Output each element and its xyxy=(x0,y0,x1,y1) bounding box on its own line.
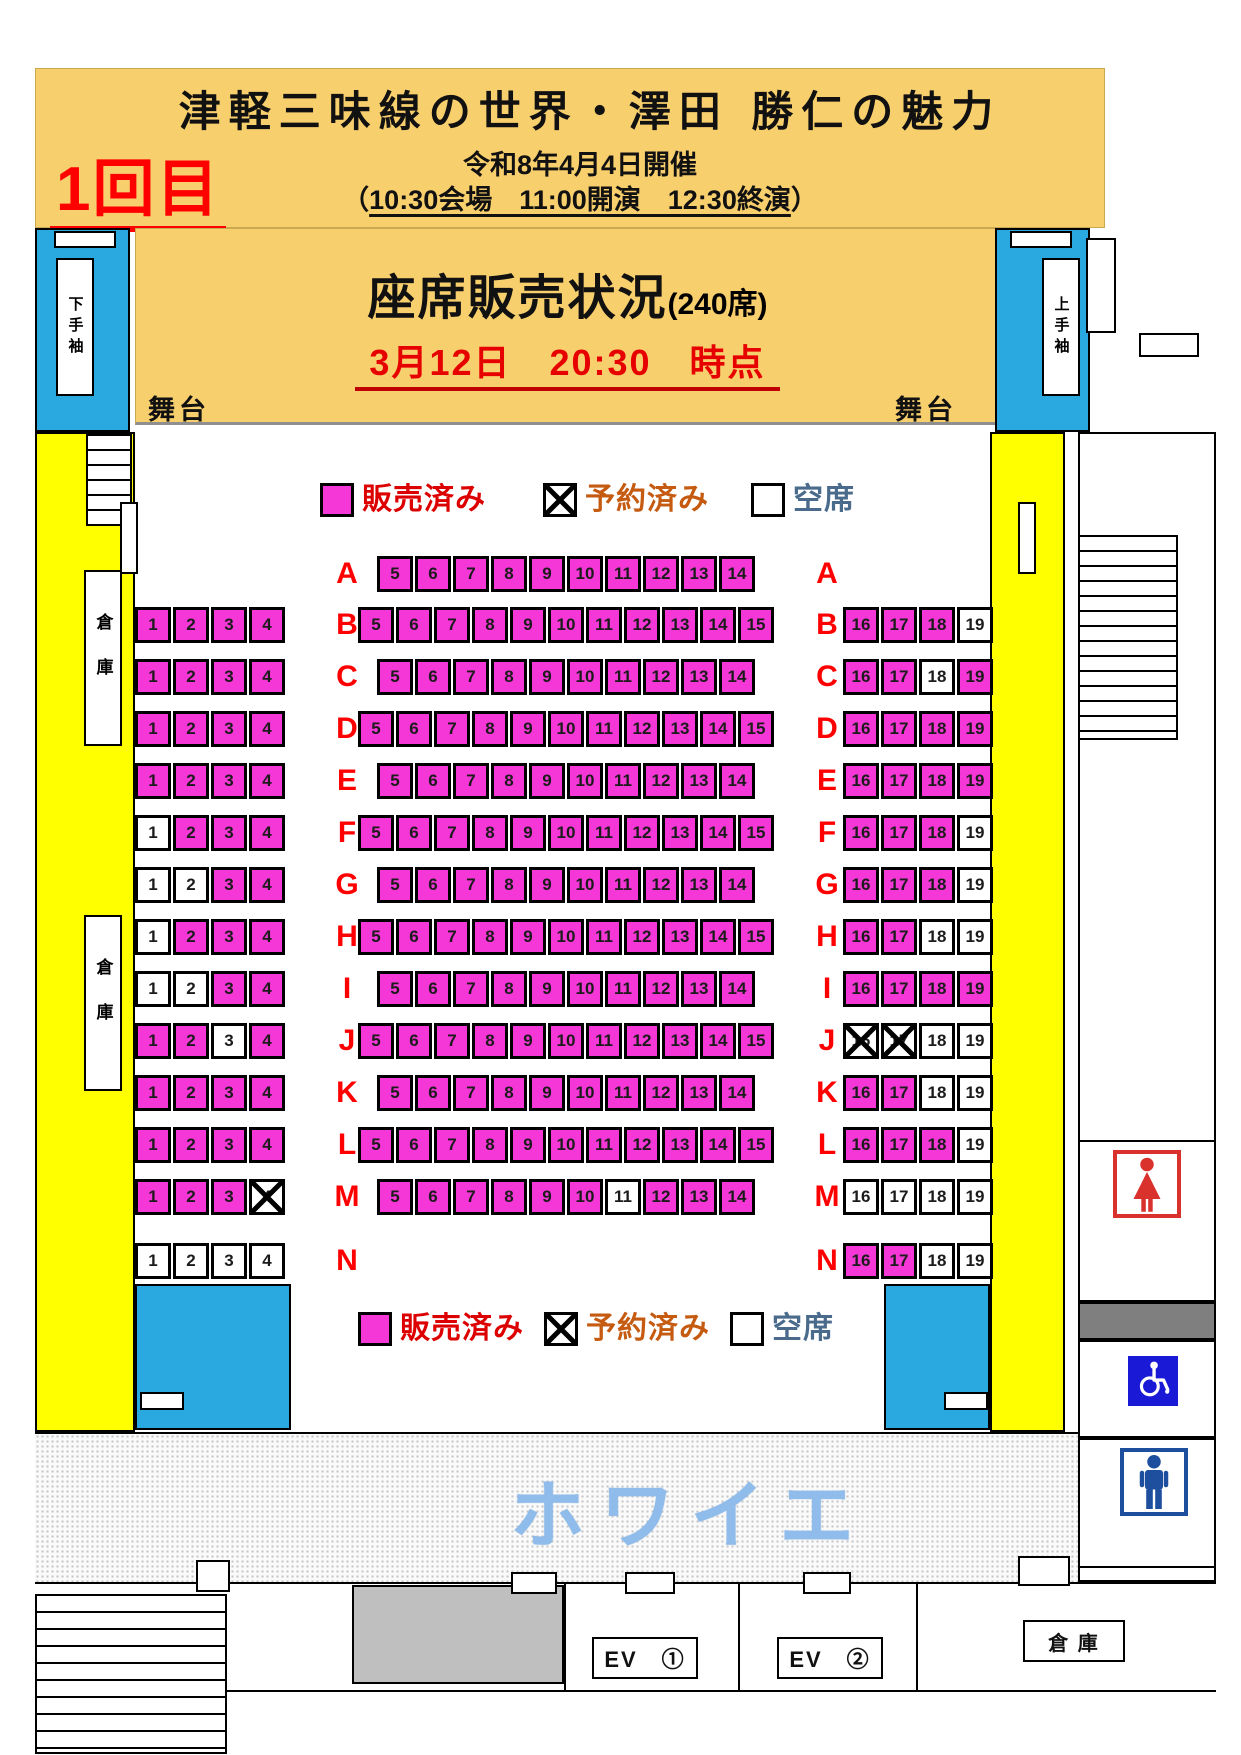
seat-I6: 6 xyxy=(415,971,451,1007)
seat-K5: 5 xyxy=(377,1075,413,1111)
seat-F13: 13 xyxy=(662,815,698,851)
seat-A8: 8 xyxy=(491,556,527,592)
elevator-1-label: EV ① xyxy=(604,1642,685,1674)
elevator-2-label: EV ② xyxy=(789,1642,870,1674)
seat-A11: 11 xyxy=(605,556,641,592)
seat-H1: 1 xyxy=(135,919,171,955)
legend-top-reserved-swatch xyxy=(543,483,577,517)
seat-L5: 5 xyxy=(358,1127,394,1163)
seat-E13: 13 xyxy=(681,763,717,799)
bottom-divider-3 xyxy=(916,1582,918,1692)
seat-H9: 9 xyxy=(510,919,546,955)
seat-J7: 7 xyxy=(434,1023,470,1059)
seat-C2: 2 xyxy=(173,659,209,695)
legend-top-sold-swatch xyxy=(320,483,354,517)
seat-L18: 18 xyxy=(919,1127,955,1163)
seat-A5: 5 xyxy=(377,556,413,592)
seat-D19: 19 xyxy=(957,711,993,747)
seat-C19: 19 xyxy=(957,659,993,695)
stage-entrance-right-door xyxy=(944,1392,988,1410)
seat-B5: 5 xyxy=(358,607,394,643)
seat-N16: 16 xyxy=(843,1243,879,1279)
strip-door-3 xyxy=(803,1572,851,1594)
seat-F15: 15 xyxy=(738,815,774,851)
seat-H8: 8 xyxy=(472,919,508,955)
row-letter-right-A: A xyxy=(810,556,844,592)
seat-E17: 17 xyxy=(881,763,917,799)
legend-top-vacant-swatch xyxy=(751,483,785,517)
seat-D6: 6 xyxy=(396,711,432,747)
seat-C6: 6 xyxy=(415,659,451,695)
row-letter-left-A: A xyxy=(330,556,364,592)
seat-B8: 8 xyxy=(472,607,508,643)
seat-I19: 19 xyxy=(957,971,993,1007)
seat-K2: 2 xyxy=(173,1075,209,1111)
seat-D16: 16 xyxy=(843,711,879,747)
legend-bottom-sold-swatch xyxy=(358,1312,392,1346)
legend-bottom-vacant-label: 空席 xyxy=(772,1312,834,1346)
seat-E8: 8 xyxy=(491,763,527,799)
seat-G13: 13 xyxy=(681,867,717,903)
seat-E10: 10 xyxy=(567,763,603,799)
seat-I12: 12 xyxy=(643,971,679,1007)
seat-J12: 12 xyxy=(624,1023,660,1059)
seat-K3: 3 xyxy=(211,1075,247,1111)
seat-J2: 2 xyxy=(173,1023,209,1059)
seat-K10: 10 xyxy=(567,1075,603,1111)
seat-K13: 13 xyxy=(681,1075,717,1111)
seat-M19: 19 xyxy=(957,1179,993,1215)
seat-M8: 8 xyxy=(491,1179,527,1215)
seat-D8: 8 xyxy=(472,711,508,747)
seat-L19: 19 xyxy=(957,1127,993,1163)
seat-M17: 17 xyxy=(881,1179,917,1215)
seat-G11: 11 xyxy=(605,867,641,903)
seat-H17: 17 xyxy=(881,919,917,955)
seat-B4: 4 xyxy=(249,607,285,643)
seat-K12: 12 xyxy=(643,1075,679,1111)
seat-E6: 6 xyxy=(415,763,451,799)
seat-G1: 1 xyxy=(135,867,171,903)
seat-B19: 19 xyxy=(957,607,993,643)
seat-I10: 10 xyxy=(567,971,603,1007)
seat-M2: 2 xyxy=(173,1179,209,1215)
row-letter-right-N: N xyxy=(810,1243,844,1279)
seat-N2: 2 xyxy=(173,1243,209,1279)
seat-I5: 5 xyxy=(377,971,413,1007)
seat-E7: 7 xyxy=(453,763,489,799)
seat-A7: 7 xyxy=(453,556,489,592)
seat-H19: 19 xyxy=(957,919,993,955)
seat-J19: 19 xyxy=(957,1023,993,1059)
row-letter-left-M: M xyxy=(330,1179,364,1215)
row-letter-right-D: D xyxy=(810,711,844,747)
seat-J10: 10 xyxy=(548,1023,584,1059)
row-letter-right-B: B xyxy=(810,607,844,643)
seat-J8: 8 xyxy=(472,1023,508,1059)
seat-B3: 3 xyxy=(211,607,247,643)
seat-B14: 14 xyxy=(700,607,736,643)
seat-G18: 18 xyxy=(919,867,955,903)
seat-L11: 11 xyxy=(586,1127,622,1163)
seat-L4: 4 xyxy=(249,1127,285,1163)
seat-H6: 6 xyxy=(396,919,432,955)
row-letter-right-F: F xyxy=(810,815,844,851)
seat-B15: 15 xyxy=(738,607,774,643)
seat-J17: 17 xyxy=(881,1023,917,1059)
seat-I8: 8 xyxy=(491,971,527,1007)
seat-C3: 3 xyxy=(211,659,247,695)
seat-M1: 1 xyxy=(135,1179,171,1215)
seat-E14: 14 xyxy=(719,763,755,799)
seat-J9: 9 xyxy=(510,1023,546,1059)
seat-C10: 10 xyxy=(567,659,603,695)
seat-E2: 2 xyxy=(173,763,209,799)
seat-L9: 9 xyxy=(510,1127,546,1163)
seat-L14: 14 xyxy=(700,1127,736,1163)
seat-G5: 5 xyxy=(377,867,413,903)
seat-E3: 3 xyxy=(211,763,247,799)
seat-B6: 6 xyxy=(396,607,432,643)
seat-G14: 14 xyxy=(719,867,755,903)
seat-B2: 2 xyxy=(173,607,209,643)
seat-C11: 11 xyxy=(605,659,641,695)
seat-F18: 18 xyxy=(919,815,955,851)
seat-I17: 17 xyxy=(881,971,917,1007)
legend-bottom-reserved-swatch xyxy=(544,1312,578,1346)
seat-M3: 3 xyxy=(211,1179,247,1215)
seat-F12: 12 xyxy=(624,815,660,851)
seat-G19: 19 xyxy=(957,867,993,903)
seat-B18: 18 xyxy=(919,607,955,643)
stairs-bottom-door xyxy=(196,1560,230,1592)
seat-B17: 17 xyxy=(881,607,917,643)
row-letter-left-I: I xyxy=(330,971,364,1007)
foyer-label: ホワイエ xyxy=(450,1460,930,1558)
seat-L7: 7 xyxy=(434,1127,470,1163)
seat-H2: 2 xyxy=(173,919,209,955)
seat-K7: 7 xyxy=(453,1075,489,1111)
seat-L17: 17 xyxy=(881,1127,917,1163)
seat-H15: 15 xyxy=(738,919,774,955)
seat-D7: 7 xyxy=(434,711,470,747)
seat-J13: 13 xyxy=(662,1023,698,1059)
seat-B13: 13 xyxy=(662,607,698,643)
seat-K16: 16 xyxy=(843,1075,879,1111)
seat-J18: 18 xyxy=(919,1023,955,1059)
seat-F7: 7 xyxy=(434,815,470,851)
seat-C14: 14 xyxy=(719,659,755,695)
seat-M5: 5 xyxy=(377,1179,413,1215)
seat-I4: 4 xyxy=(249,971,285,1007)
seat-I3: 3 xyxy=(211,971,247,1007)
seat-L10: 10 xyxy=(548,1127,584,1163)
seat-K1: 1 xyxy=(135,1075,171,1111)
seat-D12: 12 xyxy=(624,711,660,747)
seat-E5: 5 xyxy=(377,763,413,799)
seat-G10: 10 xyxy=(567,867,603,903)
seat-M16: 16 xyxy=(843,1179,879,1215)
seat-I9: 9 xyxy=(529,971,565,1007)
seat-I14: 14 xyxy=(719,971,755,1007)
seat-B10: 10 xyxy=(548,607,584,643)
row-letter-left-N: N xyxy=(330,1243,364,1279)
seat-D5: 5 xyxy=(358,711,394,747)
seat-E9: 9 xyxy=(529,763,565,799)
seat-F3: 3 xyxy=(211,815,247,851)
seat-F4: 4 xyxy=(249,815,285,851)
strip-door-4 xyxy=(1018,1556,1070,1586)
row-letter-right-G: G xyxy=(810,867,844,903)
seat-N3: 3 xyxy=(211,1243,247,1279)
seat-I2: 2 xyxy=(173,971,209,1007)
seat-H3: 3 xyxy=(211,919,247,955)
seat-M14: 14 xyxy=(719,1179,755,1215)
seat-E1: 1 xyxy=(135,763,171,799)
seat-D1: 1 xyxy=(135,711,171,747)
seat-C4: 4 xyxy=(249,659,285,695)
seat-D11: 11 xyxy=(586,711,622,747)
seat-I13: 13 xyxy=(681,971,717,1007)
seat-F6: 6 xyxy=(396,815,432,851)
storage-bottom-label: 倉 庫 xyxy=(1048,1627,1100,1656)
seat-F14: 14 xyxy=(700,815,736,851)
seat-H14: 14 xyxy=(700,919,736,955)
row-letter-left-G: G xyxy=(330,867,364,903)
bottom-divider-1 xyxy=(564,1582,566,1692)
seat-N18: 18 xyxy=(919,1243,955,1279)
seat-M4: 4 xyxy=(249,1179,285,1215)
seat-J11: 11 xyxy=(586,1023,622,1059)
gray-room xyxy=(352,1585,564,1684)
strip-door-2 xyxy=(625,1572,675,1594)
seat-J15: 15 xyxy=(738,1023,774,1059)
stairs-bottom-left xyxy=(35,1594,227,1754)
seat-F19: 19 xyxy=(957,815,993,851)
seat-L8: 8 xyxy=(472,1127,508,1163)
seat-C17: 17 xyxy=(881,659,917,695)
seat-J5: 5 xyxy=(358,1023,394,1059)
seat-J14: 14 xyxy=(700,1023,736,1059)
seat-F2: 2 xyxy=(173,815,209,851)
seat-L13: 13 xyxy=(662,1127,698,1163)
seat-K9: 9 xyxy=(529,1075,565,1111)
seat-C12: 12 xyxy=(643,659,679,695)
seat-A12: 12 xyxy=(643,556,679,592)
seat-J16: 16 xyxy=(843,1023,879,1059)
seat-K6: 6 xyxy=(415,1075,451,1111)
seat-A13: 13 xyxy=(681,556,717,592)
seat-F1: 1 xyxy=(135,815,171,851)
seat-M12: 12 xyxy=(643,1179,679,1215)
row-letter-right-J: J xyxy=(810,1023,844,1059)
seat-K17: 17 xyxy=(881,1075,917,1111)
seat-A14: 14 xyxy=(719,556,755,592)
seat-G16: 16 xyxy=(843,867,879,903)
seat-L16: 16 xyxy=(843,1127,879,1163)
seat-A9: 9 xyxy=(529,556,565,592)
seat-G3: 3 xyxy=(211,867,247,903)
seat-M11: 11 xyxy=(605,1179,641,1215)
seat-C5: 5 xyxy=(377,659,413,695)
row-letter-right-L: L xyxy=(810,1127,844,1163)
seat-D13: 13 xyxy=(662,711,698,747)
seat-F17: 17 xyxy=(881,815,917,851)
seat-F10: 10 xyxy=(548,815,584,851)
seat-D9: 9 xyxy=(510,711,546,747)
seat-H4: 4 xyxy=(249,919,285,955)
seat-I16: 16 xyxy=(843,971,879,1007)
seat-E4: 4 xyxy=(249,763,285,799)
seat-B7: 7 xyxy=(434,607,470,643)
seat-M10: 10 xyxy=(567,1179,603,1215)
seat-M18: 18 xyxy=(919,1179,955,1215)
seat-K19: 19 xyxy=(957,1075,993,1111)
seat-H10: 10 xyxy=(548,919,584,955)
seat-A6: 6 xyxy=(415,556,451,592)
seat-C16: 16 xyxy=(843,659,879,695)
legend-top-vacant-label: 空席 xyxy=(793,483,855,517)
elevator-2-box: EV ② xyxy=(777,1637,883,1679)
legend-bottom-sold-label: 販売済み xyxy=(400,1312,524,1346)
row-letter-right-K: K xyxy=(810,1075,844,1111)
seat-E11: 11 xyxy=(605,763,641,799)
seat-G7: 7 xyxy=(453,867,489,903)
legend-top-sold-label: 販売済み xyxy=(362,483,486,517)
legend-bottom-reserved-label: 予約済み xyxy=(586,1312,710,1346)
seat-C9: 9 xyxy=(529,659,565,695)
seat-G8: 8 xyxy=(491,867,527,903)
seat-N1: 1 xyxy=(135,1243,171,1279)
row-letter-right-C: C xyxy=(810,659,844,695)
seat-H12: 12 xyxy=(624,919,660,955)
seat-E18: 18 xyxy=(919,763,955,799)
seat-N17: 17 xyxy=(881,1243,917,1279)
seat-I11: 11 xyxy=(605,971,641,1007)
seat-G9: 9 xyxy=(529,867,565,903)
seating-chart-page: 1回目 津軽三味線の世界・澤田 勝仁の魅力 令和8年4月4日開催 （10:30会… xyxy=(0,0,1241,1755)
seat-N4: 4 xyxy=(249,1243,285,1279)
seat-G4: 4 xyxy=(249,867,285,903)
seat-M13: 13 xyxy=(681,1179,717,1215)
seat-M9: 9 xyxy=(529,1179,565,1215)
seat-G2: 2 xyxy=(173,867,209,903)
seat-J1: 1 xyxy=(135,1023,171,1059)
seat-E19: 19 xyxy=(957,763,993,799)
seat-H7: 7 xyxy=(434,919,470,955)
seat-L2: 2 xyxy=(173,1127,209,1163)
seat-I1: 1 xyxy=(135,971,171,1007)
seat-E16: 16 xyxy=(843,763,879,799)
bottom-divider-2 xyxy=(738,1582,740,1692)
seat-L6: 6 xyxy=(396,1127,432,1163)
seat-E12: 12 xyxy=(643,763,679,799)
seat-B1: 1 xyxy=(135,607,171,643)
row-letter-left-C: C xyxy=(330,659,364,695)
storage-bottom-box: 倉 庫 xyxy=(1023,1620,1125,1662)
seat-K8: 8 xyxy=(491,1075,527,1111)
seat-C18: 18 xyxy=(919,659,955,695)
seat-L3: 3 xyxy=(211,1127,247,1163)
seat-F11: 11 xyxy=(586,815,622,851)
seat-C8: 8 xyxy=(491,659,527,695)
seat-G17: 17 xyxy=(881,867,917,903)
seat-H5: 5 xyxy=(358,919,394,955)
seat-F16: 16 xyxy=(843,815,879,851)
strip-door-1 xyxy=(511,1572,557,1594)
seat-M6: 6 xyxy=(415,1179,451,1215)
seat-D17: 17 xyxy=(881,711,917,747)
row-letter-right-I: I xyxy=(810,971,844,1007)
seat-K18: 18 xyxy=(919,1075,955,1111)
seat-D10: 10 xyxy=(548,711,584,747)
seat-A10: 10 xyxy=(567,556,603,592)
seat-L12: 12 xyxy=(624,1127,660,1163)
seat-H13: 13 xyxy=(662,919,698,955)
seat-F9: 9 xyxy=(510,815,546,851)
seat-C7: 7 xyxy=(453,659,489,695)
seat-K4: 4 xyxy=(249,1075,285,1111)
legend-bottom-vacant-swatch xyxy=(730,1312,764,1346)
seat-F5: 5 xyxy=(358,815,394,851)
row-letter-right-E: E xyxy=(810,763,844,799)
legend-top-reserved-label: 予約済み xyxy=(585,483,709,517)
seat-F8: 8 xyxy=(472,815,508,851)
seat-H16: 16 xyxy=(843,919,879,955)
seat-D14: 14 xyxy=(700,711,736,747)
row-letter-left-E: E xyxy=(330,763,364,799)
seat-J4: 4 xyxy=(249,1023,285,1059)
seat-I18: 18 xyxy=(919,971,955,1007)
seat-G6: 6 xyxy=(415,867,451,903)
seat-D2: 2 xyxy=(173,711,209,747)
seat-B11: 11 xyxy=(586,607,622,643)
seat-L15: 15 xyxy=(738,1127,774,1163)
seat-B12: 12 xyxy=(624,607,660,643)
seat-K14: 14 xyxy=(719,1075,755,1111)
seat-H18: 18 xyxy=(919,919,955,955)
stage-entrance-left-door xyxy=(140,1392,184,1410)
seat-C13: 13 xyxy=(681,659,717,695)
elevator-1-box: EV ① xyxy=(592,1637,698,1679)
seat-D3: 3 xyxy=(211,711,247,747)
seat-B16: 16 xyxy=(843,607,879,643)
row-letter-right-H: H xyxy=(810,919,844,955)
seat-I7: 7 xyxy=(453,971,489,1007)
seat-J3: 3 xyxy=(211,1023,247,1059)
seat-M7: 7 xyxy=(453,1179,489,1215)
row-letter-left-K: K xyxy=(330,1075,364,1111)
seat-G12: 12 xyxy=(643,867,679,903)
seat-B9: 9 xyxy=(510,607,546,643)
seat-D18: 18 xyxy=(919,711,955,747)
seat-N19: 19 xyxy=(957,1243,993,1279)
seat-D15: 15 xyxy=(738,711,774,747)
seat-L1: 1 xyxy=(135,1127,171,1163)
seat-H11: 11 xyxy=(586,919,622,955)
seat-C1: 1 xyxy=(135,659,171,695)
seat-D4: 4 xyxy=(249,711,285,747)
row-letter-right-M: M xyxy=(810,1179,844,1215)
seat-K11: 11 xyxy=(605,1075,641,1111)
seat-J6: 6 xyxy=(396,1023,432,1059)
